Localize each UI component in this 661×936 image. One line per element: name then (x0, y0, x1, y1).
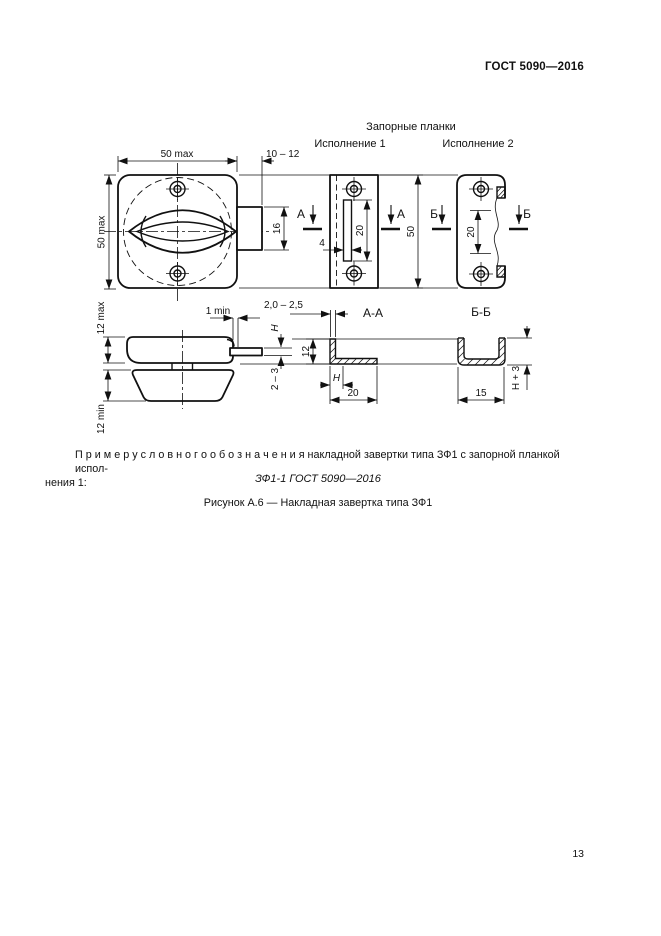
section-aa-view: А-А 2,0 – 2,5 (264, 300, 383, 404)
dim-plate1-height: 50 (406, 226, 417, 238)
section-letter-b-2: Б (523, 207, 531, 221)
section-bb-view: Б-Б 15 (458, 305, 532, 404)
page-number: 13 (572, 848, 584, 860)
side-view-dimensions: 12 max 12 min 1 min H 2 – 3 (96, 302, 292, 434)
dim-aa-width: 20 (347, 388, 359, 399)
plate2-dimensions: 20 (466, 211, 491, 254)
variant-2-label: Исполнение 2 (442, 138, 513, 150)
dim-bb-height: H + 3 (511, 365, 522, 390)
plate1-dimensions: 20 4 50 (319, 175, 423, 288)
section-letter-a-1: А (297, 207, 305, 221)
dim-aa-height: 12 (301, 346, 312, 358)
example-line-1: П р и м е р у с л о в н о г о о б о з н … (45, 448, 591, 476)
tongue-side (230, 348, 262, 356)
dim-tongue-height: 16 (272, 223, 283, 235)
section-aa-label: А-А (363, 306, 383, 320)
tongue-front (237, 207, 262, 250)
plate2-hole-top (469, 177, 493, 201)
bb-channel-inner (464, 338, 499, 359)
bb-hatching (458, 338, 505, 365)
section-bb-label: Б-Б (471, 305, 491, 319)
strike-plate-1: 20 4 50 (319, 175, 423, 288)
dim-handle-height: 12 min (96, 404, 107, 434)
section-letter-b-1: Б (430, 207, 438, 221)
plate2-hole-bottom (469, 262, 493, 286)
dim-front-height: 50 max (97, 216, 108, 249)
plate1-hole-top (342, 177, 366, 201)
plates-group-title: Запорные планки (366, 121, 456, 133)
strike-plate-2: 20 (457, 175, 505, 288)
knob-side (133, 370, 234, 401)
dim-bb-width: 15 (475, 388, 487, 399)
latch-front-view: 50 max 10 – 12 50 max 16 (97, 149, 300, 301)
aa-hatching (330, 341, 377, 365)
screw-hole-bottom (166, 262, 189, 285)
dim-tongue-length: 10 – 12 (266, 149, 300, 160)
screw-hole-top (166, 178, 189, 200)
dim-plate2-window-height: 20 (466, 226, 477, 238)
variant-1-label: Исполнение 1 (314, 138, 385, 150)
plate2-lip-section-bottom (497, 266, 505, 277)
dim-front-width: 50 max (161, 149, 194, 160)
plate1-hole-bottom (342, 262, 366, 286)
plate1-slot (344, 200, 352, 261)
designation-line: ЗФ1-1 ГОСТ 5090—2016 (45, 473, 591, 485)
base-plate-side (127, 337, 233, 363)
document-page: ГОСТ 5090—2016 Запорные планки Исполнени… (0, 0, 661, 936)
front-view-dimensions: 50 max 10 – 12 50 max 16 (97, 149, 300, 289)
plate2-lip-section-top (497, 187, 505, 198)
section-markers: А А Б Б (297, 205, 531, 229)
dim-aa-hook: H (333, 373, 341, 384)
dim-slot-height: 20 (355, 225, 366, 237)
dim-base-thickness: 12 max (96, 302, 107, 335)
latch-side-view: 12 max 12 min 1 min H 2 – 3 (96, 302, 292, 434)
plate2-break-line (494, 198, 498, 266)
dim-slot-width: 4 (319, 238, 325, 249)
figure-caption: Рисунок А.6 — Накладная завертка типа ЗФ… (45, 497, 591, 509)
dim-strip-thickness: 2,0 – 2,5 (264, 300, 303, 311)
dim-clearance: 1 min (206, 306, 230, 317)
dim-tongue-thickness: 2 – 3 (270, 367, 281, 390)
bb-channel-outer (458, 338, 505, 365)
dim-tongue-offset: H (270, 324, 281, 332)
section-letter-a-2: А (397, 207, 405, 221)
aa-angle-profile (330, 339, 377, 364)
figure-a6-drawing: Запорные планки Исполнение 1 Исполнение … (0, 0, 661, 450)
